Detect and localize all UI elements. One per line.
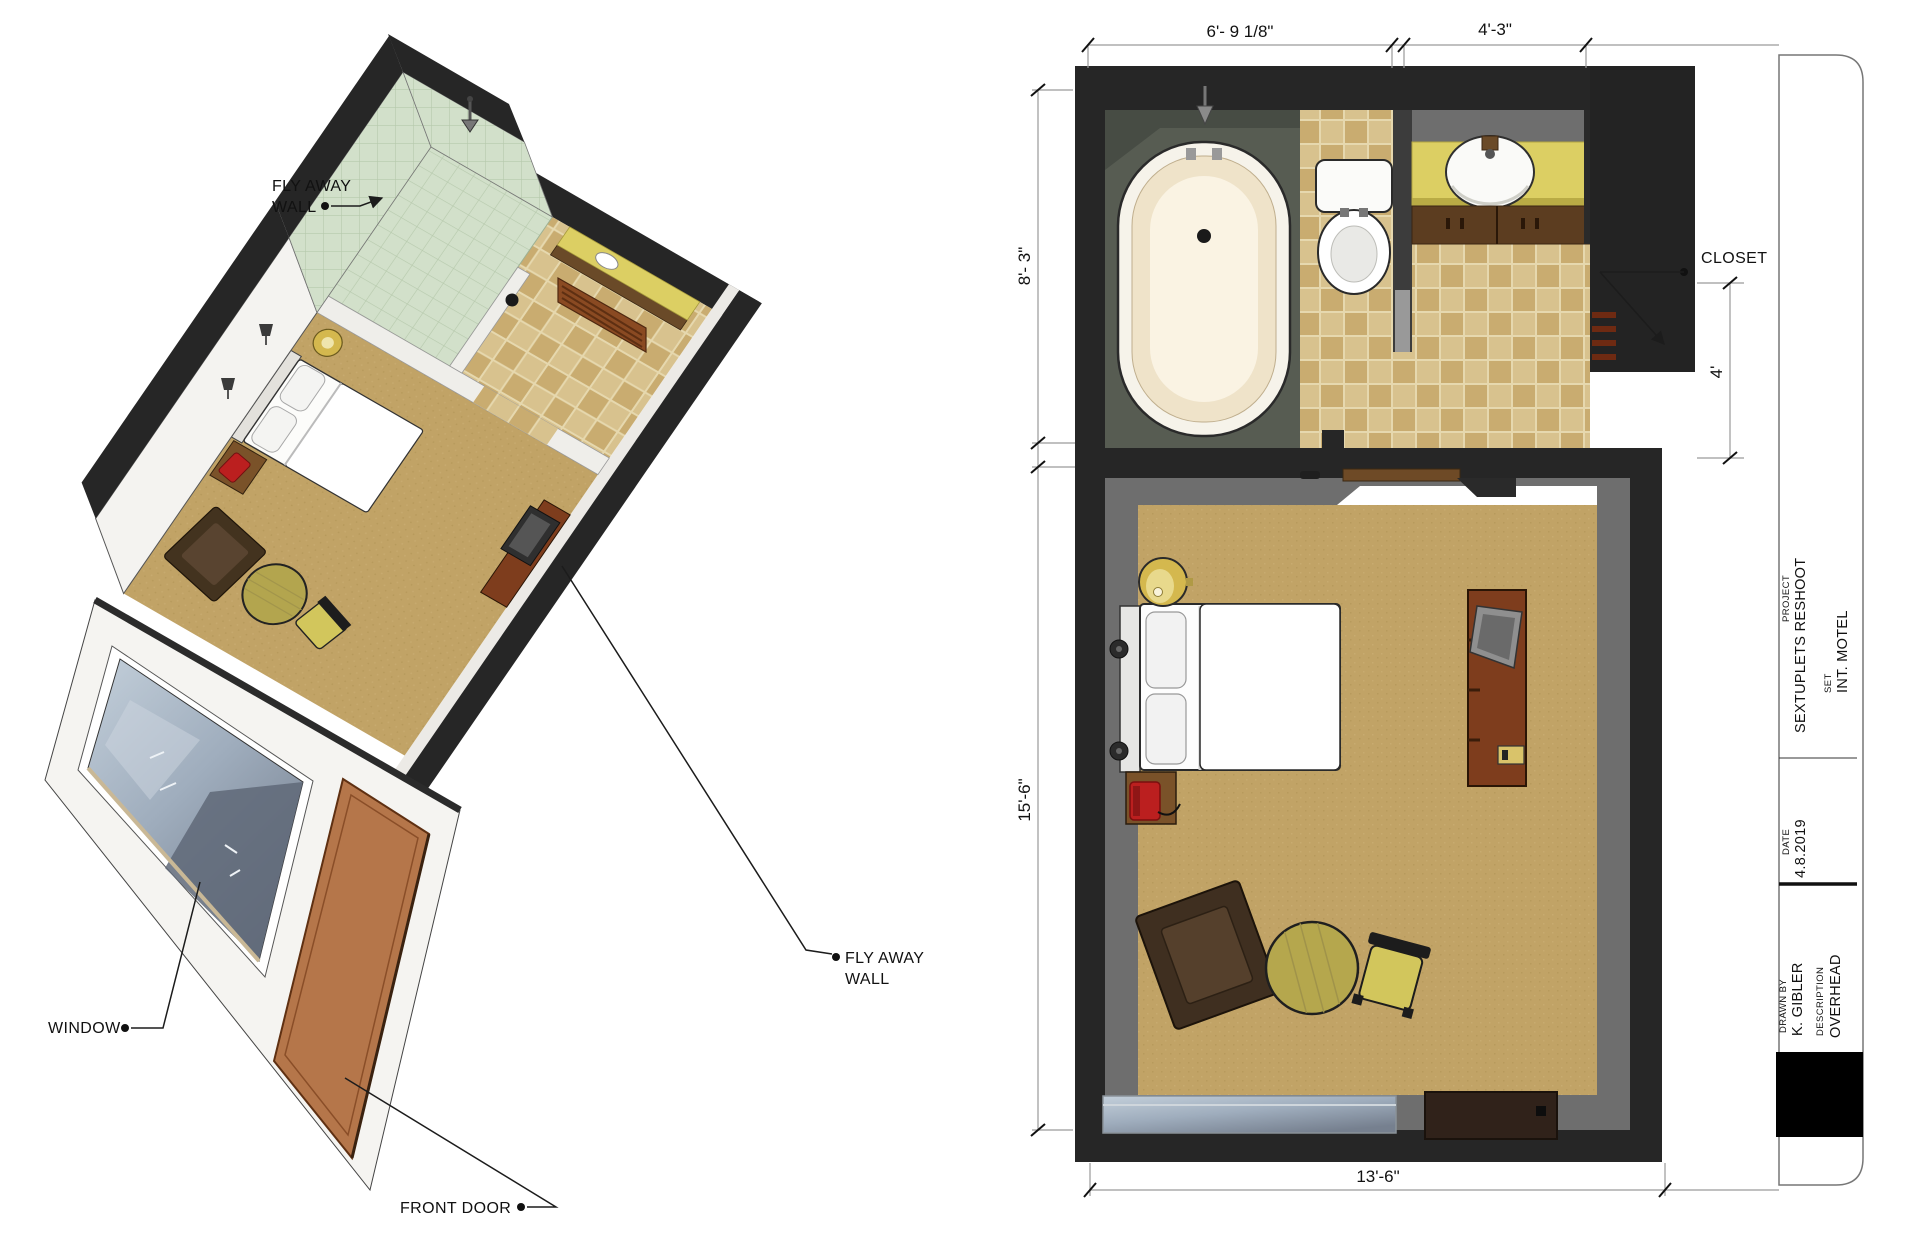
plan-window (1103, 1096, 1396, 1133)
overhead-plan: 6'- 9 1/8" 4'-3" 8'- 3" 15'-6" 13'-6" 4'… (1015, 20, 1779, 1197)
plan-left-wall-bedroom (1075, 478, 1105, 1162)
description-label: DESCRIPTION (1815, 967, 1826, 1036)
title-block-black-panel (1776, 1052, 1863, 1137)
leader-dot (121, 1024, 129, 1032)
label-fly-away-wall-right: FLY AWAY WALL (562, 566, 924, 988)
plan-left-wall-bath (1075, 66, 1105, 478)
isometric-view: FLY AWAY WALL WINDOW FRONT DOOR FLY AWAY… (45, 34, 924, 1217)
drawing-canvas: FLY AWAY WALL WINDOW FRONT DOOR FLY AWAY… (0, 0, 1920, 1242)
set-label: SET (1823, 673, 1834, 693)
plan-right-wall-bedroom (1630, 478, 1662, 1162)
leader-dot (321, 202, 329, 210)
dim-bedroom-width: 13'-6" (1356, 1167, 1399, 1186)
fly-away-wall-right-line1: FLY AWAY (845, 950, 924, 967)
fly-away-wall-right-line2: WALL (845, 971, 890, 988)
dim-vanity-width: 4'-3" (1478, 20, 1512, 39)
plan-toilet (1316, 160, 1392, 294)
plan-dresser (1468, 590, 1526, 786)
project-value: SEXTUPLETS RESHOOT (1793, 558, 1809, 733)
plan-bathtub (1118, 142, 1290, 436)
plan-bed (1120, 604, 1340, 772)
date-label: DATE (1781, 829, 1792, 855)
plan-clock (1498, 746, 1524, 764)
iso-ceiling-fixture (506, 294, 519, 307)
plan-bottom-wall (1075, 1130, 1662, 1162)
fly-away-wall-top-line1: FLY AWAY (272, 178, 351, 195)
set-value: INT. MOTEL (1835, 610, 1851, 693)
plan-front-door-mat (1425, 1092, 1557, 1139)
closet-label: CLOSET (1701, 250, 1767, 267)
plan-vanity (1412, 110, 1590, 244)
date-value: 4.8.2019 (1793, 819, 1809, 878)
leader-dot (517, 1203, 525, 1211)
drawn-by-value: K. GIBLER (1790, 962, 1806, 1036)
plan-nightstand (1126, 772, 1180, 824)
plan-round-table (1266, 919, 1358, 1017)
plan-vanity-cabinets (1412, 206, 1590, 244)
leader-dot (832, 953, 840, 961)
set-design-drawing: FLY AWAY WALL WINDOW FRONT DOOR FLY AWAY… (0, 0, 1920, 1242)
plan-shelf (1343, 469, 1460, 481)
plan-closet-area (1584, 66, 1695, 372)
dim-bedroom-depth: 15'-6" (1015, 778, 1034, 821)
drawn-by-label: DRAWN BY (1778, 979, 1789, 1033)
project-label: PROJECT (1781, 575, 1792, 622)
plan-ceiling-fixture (1300, 471, 1320, 479)
plan-closet-niche (1457, 478, 1516, 497)
window-label: WINDOW (48, 1020, 121, 1037)
fly-away-wall-top-line2: WALL (272, 199, 317, 216)
description-value: OVERHEAD (1828, 954, 1844, 1038)
dim-bath-depth: 8'- 3" (1015, 247, 1034, 286)
title-block: PROJECT SEXTUPLETS RESHOOT SET INT. MOTE… (1776, 55, 1863, 1185)
dim-bath-width: 6'- 9 1/8" (1207, 22, 1274, 41)
front-door-label: FRONT DOOR (400, 1200, 511, 1217)
dim-closet-depth: 4' (1707, 366, 1726, 379)
